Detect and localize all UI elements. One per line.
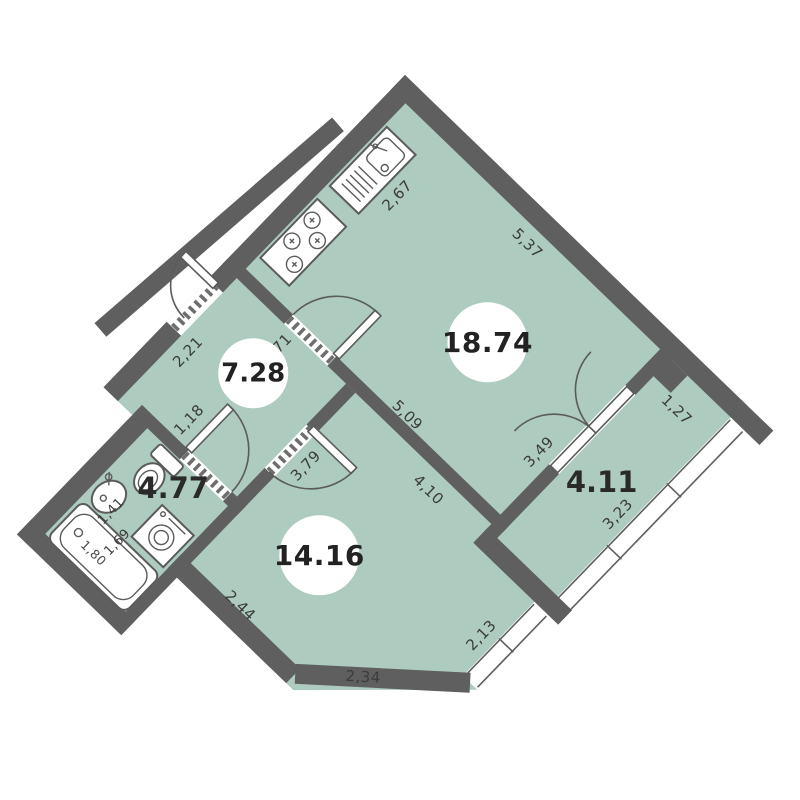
rotated-plan: 2,67 5,37 3,49 5,09 1,71 2,21 1,18 4,10 … (0, 46, 773, 800)
dim-2-34: 2,34 (345, 667, 381, 687)
svg-text:14.16: 14.16 (274, 539, 365, 572)
svg-text:18.74: 18.74 (442, 326, 533, 359)
area-bathroom: 4.77 (137, 471, 209, 505)
area-balcony: 4.11 (566, 465, 638, 499)
floor-plan-svg: 2,67 5,37 3,49 5,09 1,71 2,21 1,18 4,10 … (0, 0, 800, 800)
svg-text:7.28: 7.28 (221, 358, 285, 388)
floor-plan-canvas: 2,67 5,37 3,49 5,09 1,71 2,21 1,18 4,10 … (0, 0, 800, 800)
